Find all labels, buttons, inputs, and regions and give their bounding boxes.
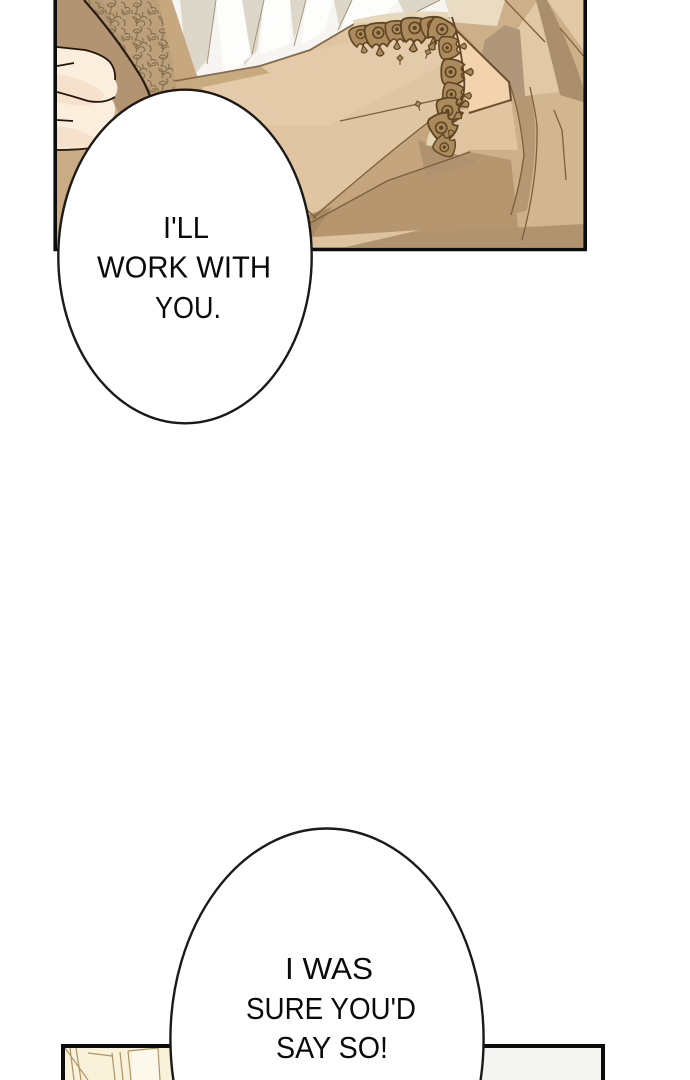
svg-text:WORK WITH: WORK WITH: [97, 251, 271, 285]
svg-text:I WAS: I WAS: [285, 952, 373, 986]
svg-text:YOU.: YOU.: [155, 291, 221, 325]
svg-text:I'LL: I'LL: [163, 211, 209, 245]
svg-text:SAY SO!: SAY SO!: [276, 1031, 388, 1065]
svg-text:SURE YOU'D: SURE YOU'D: [246, 992, 416, 1026]
